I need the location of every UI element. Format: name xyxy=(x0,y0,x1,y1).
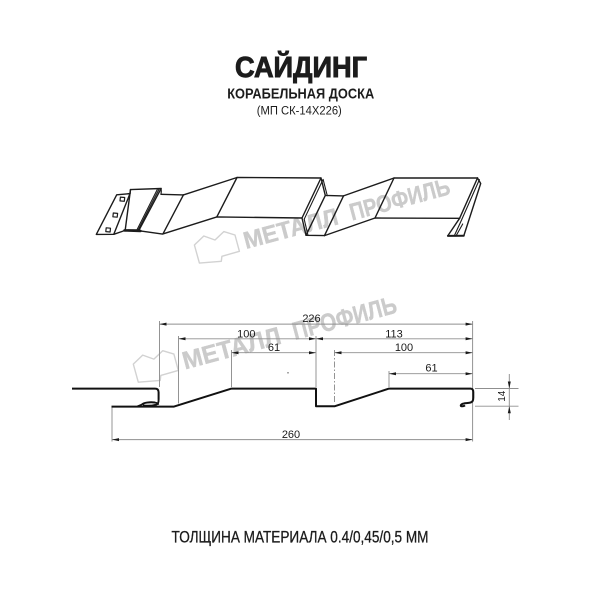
svg-text:113: 113 xyxy=(385,328,403,340)
svg-text:226: 226 xyxy=(302,313,320,325)
svg-text:61: 61 xyxy=(268,342,280,354)
svg-text:САЙДИНГ: САЙДИНГ xyxy=(235,50,367,84)
svg-text:14: 14 xyxy=(497,390,508,402)
svg-text:260: 260 xyxy=(282,429,300,441)
svg-text:100: 100 xyxy=(395,342,413,354)
svg-text:61: 61 xyxy=(425,362,437,374)
svg-text:(МП СК-14Х226): (МП СК-14Х226) xyxy=(257,103,342,117)
svg-text:100: 100 xyxy=(237,328,255,340)
svg-text:КОРАБЕЛЬНАЯ ДОСКА: КОРАБЕЛЬНАЯ ДОСКА xyxy=(227,86,374,102)
svg-text:ТОЛЩИНА МАТЕРИАЛА 0.4/0,45/0,5: ТОЛЩИНА МАТЕРИАЛА 0.4/0,45/0,5 ММ xyxy=(172,529,429,547)
